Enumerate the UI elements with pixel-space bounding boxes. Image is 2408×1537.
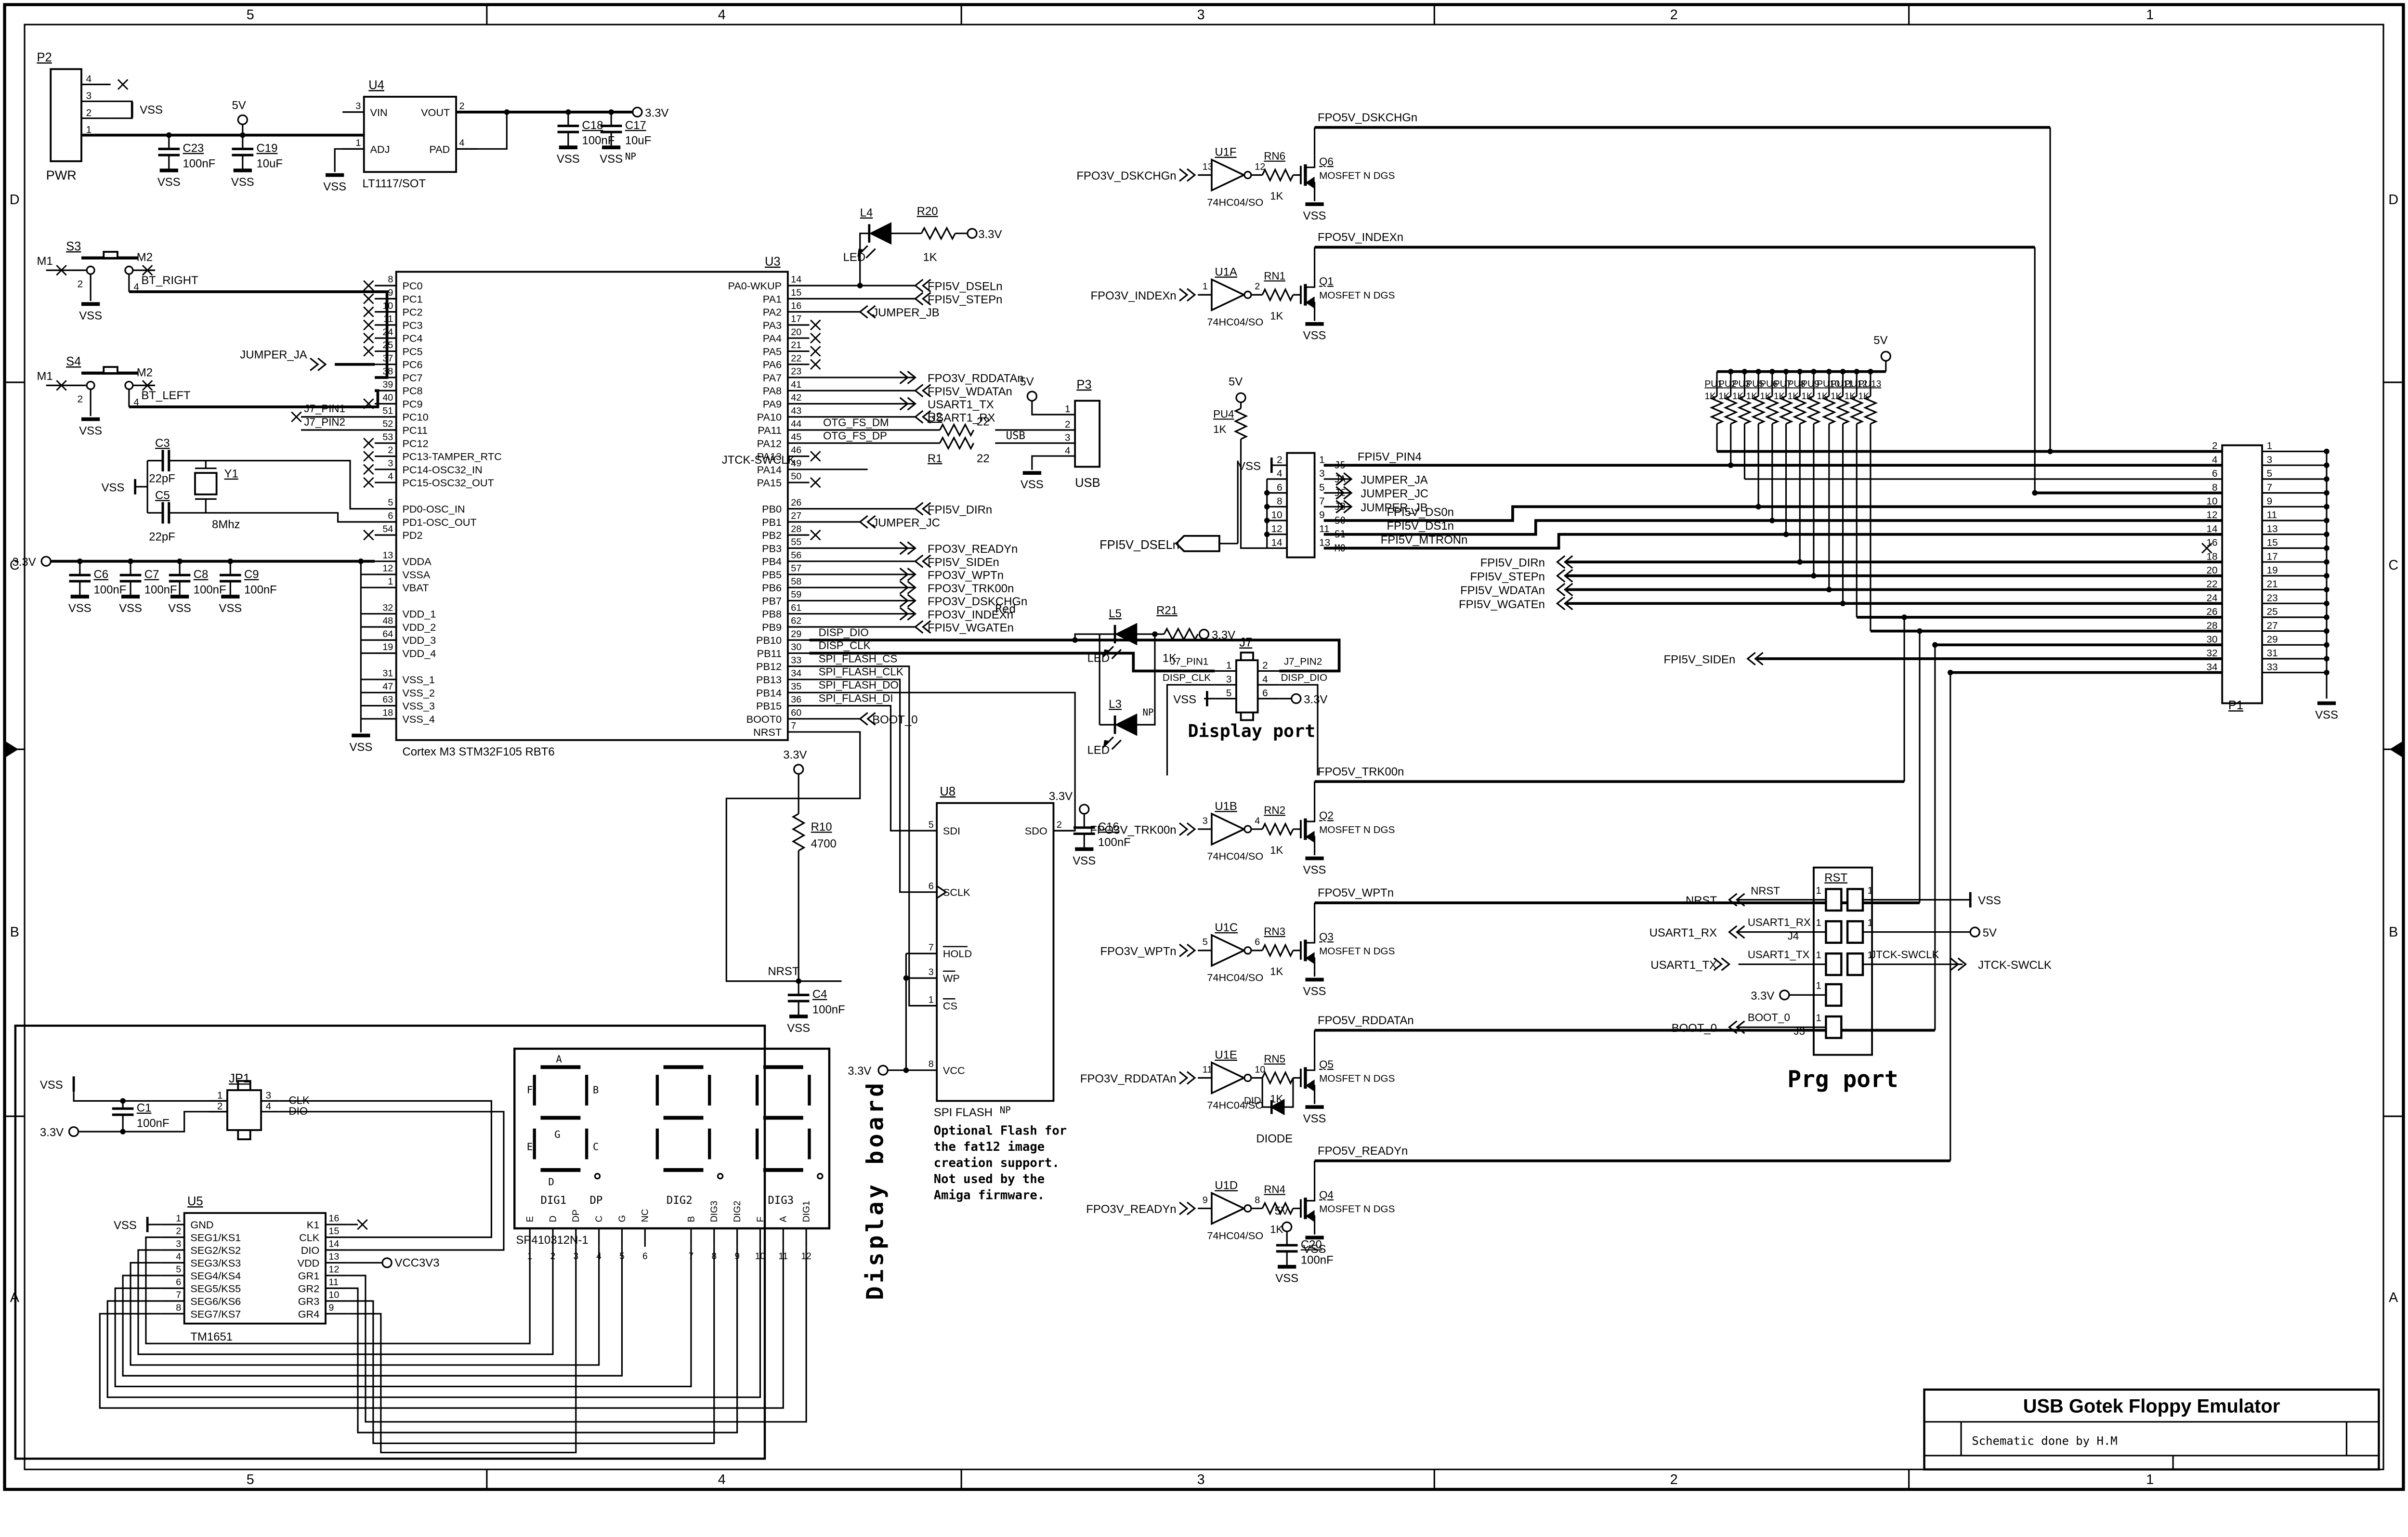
pin-name: PA6 <box>763 359 782 371</box>
connector-ref: P3 <box>1076 378 1091 391</box>
pin-number: 7 <box>791 721 796 731</box>
pin-number: 26 <box>2207 606 2218 617</box>
mosfet-type: MOSFET N DGS <box>1319 1073 1395 1084</box>
pin-number: 1 <box>929 994 934 1005</box>
pin-number: 50 <box>791 471 801 482</box>
inverter-triangle <box>1212 814 1244 845</box>
digit-label: DIG3 <box>768 1194 794 1207</box>
net-flag-label: USART1_TX <box>928 398 994 411</box>
vss-label: VSS <box>40 1079 63 1092</box>
digit-label: DP <box>589 1194 602 1207</box>
power-label: VCC3V3 <box>395 1257 440 1270</box>
pin-name: SEG2/KS2 <box>190 1244 241 1256</box>
pad-number: 1 <box>1816 950 1821 961</box>
pin-name: PB5 <box>762 569 782 581</box>
power-terminal <box>1283 1222 1292 1231</box>
inverter-bubble <box>1244 1075 1251 1081</box>
mosfet-type: MOSFET N DGS <box>1319 1204 1395 1215</box>
pin-number: 12 <box>2207 509 2218 521</box>
pin-name: GR3 <box>298 1295 320 1307</box>
pin-number: 5 <box>1319 482 1325 493</box>
vss-label: VSS <box>119 602 142 615</box>
inverter-triangle <box>1212 935 1244 966</box>
pin-number: 14 <box>328 1239 339 1250</box>
vss-label: VSS <box>1303 1112 1326 1125</box>
vss-label: VSS <box>68 602 92 615</box>
display-pin-number: 12 <box>801 1251 811 1262</box>
rn-value: 1K <box>1270 844 1283 856</box>
pin-number: 20 <box>2207 565 2218 576</box>
rn-ref: RN3 <box>1264 925 1285 938</box>
inverter-triangle <box>1212 1193 1244 1224</box>
cap-value: 100nF <box>144 584 177 597</box>
junction-dot <box>2047 449 2053 454</box>
frame-zone-letter: D <box>2388 192 2398 208</box>
junction-dot <box>1826 587 1832 592</box>
power-label: 3.3V <box>13 556 36 569</box>
wire <box>1032 456 1054 470</box>
pin-name: SEG7/KS7 <box>190 1308 241 1320</box>
pin-number: 56 <box>791 550 801 560</box>
label: J7_PIN2 <box>1284 656 1322 667</box>
label: BOOT_0 <box>1748 1012 1790 1024</box>
pin-number: 6 <box>1262 688 1268 699</box>
junction-dot <box>504 109 510 115</box>
gate-ref: U1D <box>1215 1179 1238 1192</box>
connector-ref: P2 <box>37 51 52 65</box>
power-label: 3.3V <box>783 748 807 761</box>
prg-pad <box>1826 984 1841 1006</box>
pin-name: PC2 <box>402 306 422 318</box>
pin-number: 44 <box>791 419 801 430</box>
gate-part: 74HC04/SO <box>1207 972 1263 984</box>
display-pin-number: 5 <box>619 1251 625 1262</box>
pin-number: 2 <box>388 445 393 456</box>
frame-zone-number: 4 <box>718 7 726 23</box>
vss-label: VSS <box>231 176 254 189</box>
pin-number: 16 <box>791 300 801 311</box>
junction-dot <box>1868 369 1873 374</box>
pin-number: 11 <box>1319 523 1330 534</box>
mosfet-type: MOSFET N DGS <box>1319 170 1395 181</box>
net-flag-label: FPO3V_READYn <box>928 543 1018 556</box>
label: USB <box>1006 430 1025 442</box>
pin-name: PC8 <box>402 385 422 397</box>
rn-value: 1K <box>1270 965 1283 977</box>
pin-name: PC3 <box>402 319 422 331</box>
pin-name: PB14 <box>756 687 782 699</box>
pin-number: 47 <box>382 681 393 692</box>
power-label: 3.3V <box>1304 693 1327 706</box>
pin-number: 3 <box>266 1090 272 1101</box>
chevron-right-icon <box>1179 288 1187 301</box>
net-flag-label: FPO3V_WPTn <box>928 569 1004 582</box>
pin-name: PB7 <box>762 595 782 607</box>
wire <box>726 732 860 981</box>
pin-name: GR4 <box>298 1308 320 1320</box>
power-label: 5V <box>1983 926 1997 939</box>
frame-zone-number: 3 <box>1197 1472 1205 1487</box>
pin-name: SDI <box>943 825 960 837</box>
display-pin-number: 11 <box>778 1251 788 1262</box>
cap-ref: C1 <box>137 1102 152 1115</box>
junction-dot <box>2324 490 2329 495</box>
pin-number: 11 <box>383 314 393 325</box>
segment-letter: G <box>554 1129 560 1140</box>
pin-number: 2 <box>1065 419 1071 430</box>
label: SPI_FLASH_CS <box>819 652 898 664</box>
junction-dot <box>1755 369 1761 374</box>
power-terminal <box>794 765 803 774</box>
pin-name: BOOT0 <box>746 713 782 725</box>
pad-number: 1 <box>1816 917 1821 928</box>
pullup-value: 1K <box>1746 391 1758 402</box>
connector-ref: JP1 <box>229 1072 250 1085</box>
net-flag-label: USART1_RX <box>928 411 995 424</box>
pin-name: SEG1/KS1 <box>190 1231 241 1243</box>
frame-mid-arrow-icon <box>2391 742 2404 757</box>
pin-number: 13 <box>328 1251 339 1262</box>
led-triangle-icon <box>1116 715 1136 734</box>
label: JTCK-SWCLK <box>1871 949 1939 961</box>
power-terminal <box>968 229 977 238</box>
pin-name: VIN <box>370 106 387 118</box>
junction-dot <box>1811 573 1816 578</box>
power-terminal <box>633 107 642 117</box>
net-in-label: FPO3V_DSKCHGn <box>1076 169 1176 182</box>
pin-name: PB10 <box>756 634 782 646</box>
pin-number: 6 <box>388 510 393 521</box>
pin-number: 37 <box>382 353 393 364</box>
led-np-label: NP <box>1142 707 1153 718</box>
junction-dot <box>2324 600 2329 606</box>
display-pin-name: DIG1 <box>801 1201 811 1223</box>
power-label: 3.3V <box>1049 790 1073 803</box>
vss-label: VSS <box>1173 693 1196 706</box>
pin-number: 33 <box>791 655 801 665</box>
ic-ref: U3 <box>765 255 781 269</box>
digit-label: DIG2 <box>667 1194 693 1207</box>
pin-number: 8 <box>929 1059 934 1069</box>
pin-name: SEG3/KS3 <box>190 1257 241 1269</box>
display-pin-number: 9 <box>734 1251 740 1262</box>
pin-number: 3 <box>2267 454 2273 465</box>
pin-name: PA15 <box>757 477 782 489</box>
junction-dot <box>2324 518 2329 523</box>
pin-number: 34 <box>2207 662 2218 673</box>
pin-name: PD2 <box>402 529 422 541</box>
pin-name: VDD <box>297 1257 319 1269</box>
pin-number: 6 <box>2212 468 2218 479</box>
net-flag-label: JUMPER_JA <box>240 349 307 362</box>
pad-number: 1 <box>1816 885 1821 896</box>
pin-name: SEG6/KS6 <box>190 1295 241 1307</box>
note-line: Optional Flash for <box>934 1124 1067 1138</box>
pin-number: 2 <box>1277 454 1283 465</box>
connector-JP1 <box>227 1090 261 1130</box>
junction-dot <box>608 109 614 115</box>
pin-name: PA10 <box>757 411 782 423</box>
pin-number: 21 <box>2267 579 2278 590</box>
wire <box>349 1247 714 1443</box>
pin-number: 18 <box>382 707 393 718</box>
power-label: 3.3V <box>40 1126 64 1139</box>
digit-label: DIG1 <box>540 1194 566 1207</box>
resistor-ref: R20 <box>917 205 938 218</box>
net-flag-label: FPI5V_STEPn <box>928 293 1002 306</box>
junction-dot <box>177 559 182 564</box>
frame-zone-number: 1 <box>2146 1472 2154 1487</box>
pin-number: 6 <box>929 881 934 891</box>
cap-value: 100nF <box>94 584 127 597</box>
label: C5 <box>155 489 170 502</box>
net-out-label: FPO5V_TRK00n <box>1318 765 1404 778</box>
label: USART1_RX <box>1748 916 1811 928</box>
net-flag-label: FPI5V_WDATAn <box>1460 584 1545 597</box>
pin-number: 53 <box>382 432 393 443</box>
resistor-ref: R1 <box>928 452 942 465</box>
rn-ref: RN6 <box>1264 150 1285 162</box>
resistor-zigzag <box>793 814 804 851</box>
power-label: 5V <box>232 99 246 112</box>
pin-number: 13 <box>1319 537 1330 548</box>
display-pin-name: C <box>594 1215 604 1222</box>
pin-number: 4 <box>1255 816 1260 826</box>
junction-dot <box>2324 532 2329 537</box>
junction-dot <box>2324 614 2329 620</box>
pullup-ref: PU4 <box>1213 408 1234 420</box>
label: DISP_DIO <box>819 626 869 638</box>
prg-pad <box>1826 953 1841 975</box>
schematic-canvas: 5544332211DDCCBBAADisplay boardU3Cortex … <box>0 0 2408 1494</box>
mosfet-ref: Q1 <box>1319 275 1334 287</box>
vss-label: VSS <box>101 481 124 494</box>
switch-contact <box>87 381 94 389</box>
pin-number: 30 <box>2207 634 2218 645</box>
frame-inner <box>25 25 2383 1470</box>
label: JTCK-SWCLK <box>722 454 796 467</box>
junction-dot <box>2324 587 2329 592</box>
cap-ref: C19 <box>257 142 278 155</box>
vss-label: VSS <box>1073 854 1096 867</box>
label: J7_PIN1 <box>1170 656 1208 667</box>
pin-number: 3 <box>355 101 361 111</box>
connector-row-label: DIO <box>288 1105 308 1117</box>
ic-subtitle: TM1651 <box>190 1330 233 1343</box>
pin-number: 8 <box>176 1303 181 1313</box>
pin-number: 42 <box>791 392 801 403</box>
frame-zone-number: 3 <box>1197 7 1205 23</box>
pin-number: 34 <box>791 668 801 679</box>
pin-number: 7 <box>176 1290 181 1300</box>
switch-ref: S4 <box>66 355 81 368</box>
prg-pad <box>1847 889 1863 911</box>
pin-number: 15 <box>328 1226 339 1237</box>
junction-dot <box>1783 532 1789 537</box>
junction-dot <box>1917 628 1922 634</box>
net-in-label: FPO3V_WPTn <box>1100 945 1177 958</box>
power-label: 5V <box>1229 375 1243 388</box>
pin-number: 20 <box>791 327 801 338</box>
pin-name: PB6 <box>762 582 782 594</box>
pin-number: 9 <box>2267 496 2273 507</box>
mosfet-type: MOSFET N DGS <box>1319 946 1395 957</box>
label: J3 <box>1793 1025 1805 1037</box>
junction-dot <box>1264 490 1269 495</box>
rn-value: 1K <box>1270 1224 1283 1236</box>
mosfet-ref: Q5 <box>1319 1058 1334 1070</box>
net-flag-label: FPO3V_TRK00n <box>928 582 1014 595</box>
net-out-label: FPO5V_INDEXn <box>1318 231 1403 244</box>
wire <box>335 149 364 172</box>
pullup-value: 1K <box>1732 391 1744 402</box>
pin-number: 29 <box>2267 634 2278 645</box>
net-flag-label: FPI5V_WDATAn <box>928 385 1012 398</box>
net-flag-label: FPI5V_WGATEn <box>928 622 1014 635</box>
label: FPI5V_DS0n <box>1387 506 1454 519</box>
pin-name: GR1 <box>298 1270 320 1282</box>
led-label: LED <box>1087 651 1110 664</box>
label: Red <box>995 602 1016 615</box>
cap-ref: C8 <box>194 568 209 581</box>
pin-name: VSS_2 <box>402 687 434 699</box>
junction-dot <box>2324 642 2329 648</box>
label: Y1 <box>224 468 238 481</box>
pin-number: 28 <box>791 524 801 534</box>
pin-number: 12 <box>382 563 393 574</box>
segment-dp <box>718 1174 722 1179</box>
pin-number: 1 <box>86 124 92 135</box>
prg-pad <box>1826 1016 1841 1038</box>
resistor-zigzag <box>940 438 974 448</box>
junction-dot <box>1932 642 1937 648</box>
pin-name: PC1 <box>402 293 422 305</box>
pin-name: PC6 <box>402 359 422 371</box>
pin-name: SEG5/KS5 <box>190 1282 241 1294</box>
net-in-label: FPO3V_RDDATAn <box>1080 1072 1177 1085</box>
label: NRST <box>768 965 799 978</box>
pin-number: 11 <box>2267 509 2277 521</box>
power-terminal <box>1080 805 1089 814</box>
crystal-body <box>195 473 217 495</box>
pin-name: GND <box>190 1219 213 1231</box>
connector-tab <box>1241 713 1254 720</box>
cap-ref: C4 <box>812 988 827 1001</box>
junction-dot <box>1728 369 1733 374</box>
connector-J7 <box>1236 660 1258 712</box>
wire <box>169 513 375 522</box>
label: OTG_FS_DM <box>823 417 889 429</box>
chevron-right-icon <box>1179 944 1187 957</box>
pin-number: 5 <box>929 820 934 830</box>
pin-number: 4 <box>459 138 464 148</box>
inverter-bubble <box>1244 826 1251 833</box>
pin-name: PA7 <box>763 372 782 384</box>
pin-number: 2 <box>1057 820 1062 830</box>
display-pin-name: D <box>548 1215 558 1222</box>
pin-name: PA12 <box>757 437 782 449</box>
pin-number: 4 <box>86 74 92 85</box>
pin-number: 3 <box>1319 468 1325 479</box>
pin-number: 2 <box>459 101 464 111</box>
gate-ref: U1E <box>1215 1049 1237 1062</box>
junction-dot <box>2324 449 2329 454</box>
pin-name: PD1-OSC_OUT <box>402 516 476 528</box>
pin-name: VBAT <box>402 582 429 594</box>
pin-number: 54 <box>382 524 393 534</box>
connector-ref: P1 <box>2228 699 2243 712</box>
pin-name: PB2 <box>762 529 782 541</box>
net-label-flag <box>1177 536 1219 551</box>
label: 22pF <box>149 472 175 485</box>
inverter-triangle <box>1212 1063 1244 1094</box>
frame-zone-number: 2 <box>1670 1472 1678 1487</box>
label: Prg port <box>1787 1067 1898 1093</box>
pin-number: 5 <box>2267 468 2273 479</box>
pin-number: 16 <box>328 1213 339 1224</box>
pin-name: VSS_4 <box>402 713 434 725</box>
pin-number: 24 <box>382 327 393 338</box>
vss-label: VSS <box>323 180 346 193</box>
pin-number: 2 <box>86 107 92 118</box>
pin-number: 3 <box>1203 816 1208 826</box>
junction-dot <box>2324 462 2329 468</box>
cap-ref: C20 <box>1301 1238 1322 1251</box>
led-ref: L4 <box>860 207 873 220</box>
led-arrow-icon <box>1112 740 1121 749</box>
pin-number: 2 <box>1262 660 1268 671</box>
pin-number: 32 <box>382 602 393 613</box>
pin-number: 15 <box>791 287 801 298</box>
vss-label: VSS <box>1978 894 2001 907</box>
diode-ref: DID <box>1244 1095 1261 1107</box>
switch-contact <box>87 266 94 274</box>
chevron-right-icon <box>1179 1202 1187 1215</box>
pin-name: PB1 <box>762 516 782 528</box>
segment-dp <box>818 1174 823 1179</box>
prg-pad <box>1847 953 1863 975</box>
label: NP <box>1000 1105 1011 1116</box>
cap-value: 100nF <box>137 1117 170 1130</box>
display-pin-name: G <box>617 1215 628 1222</box>
segment-letter: A <box>556 1054 562 1065</box>
junction-dot <box>565 109 571 115</box>
display-pin-name: A <box>779 1216 789 1222</box>
pullup-ref: PU13 <box>1858 379 1881 390</box>
power-label: 5V <box>1873 334 1887 347</box>
resistor-zigzag <box>1262 169 1293 180</box>
junction-dot <box>903 1068 909 1073</box>
pin-name: VDDA <box>402 556 432 568</box>
junction-dot <box>1901 614 1907 620</box>
pin-number: 8 <box>1255 1195 1260 1205</box>
rn-value: 1K <box>1270 190 1283 202</box>
pin-name: VDD_1 <box>402 608 436 620</box>
pin-name: PD0-OSC_IN <box>402 503 465 515</box>
frame-mid-arrow-icon <box>5 742 17 757</box>
label: Display port <box>1188 721 1315 742</box>
junction-dot <box>120 1129 125 1134</box>
pin-name: VSS_1 <box>402 674 434 686</box>
pin-number: 7 <box>2267 482 2273 493</box>
label: FPI5V_DSELn <box>1099 538 1179 552</box>
mosfet-ref: Q3 <box>1319 931 1334 943</box>
pin-name: HOLD <box>943 948 972 960</box>
connector-row-label: S0 <box>1335 515 1346 526</box>
display-pin-number: 4 <box>596 1251 602 1262</box>
junction-dot <box>796 978 801 984</box>
pin-name: VSSA <box>402 569 430 581</box>
